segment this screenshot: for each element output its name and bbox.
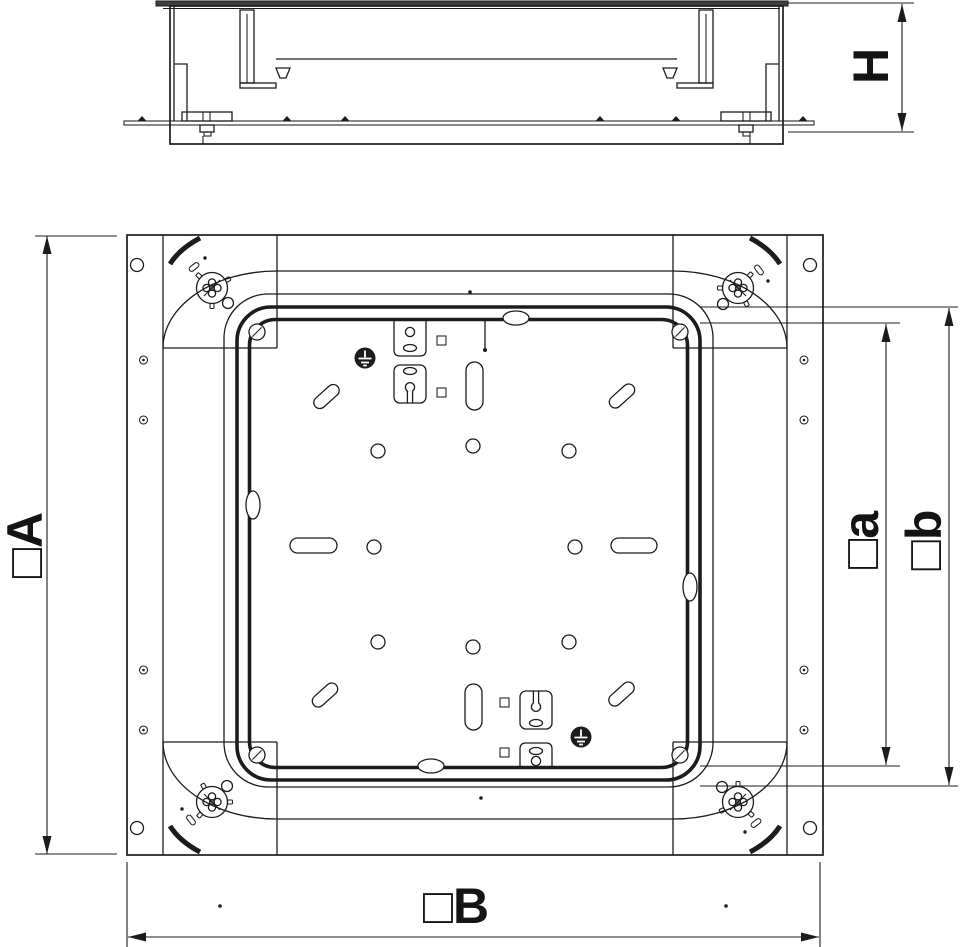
cassette-box: [224, 294, 713, 787]
cover-screw-icon: [249, 324, 265, 340]
side-view: [124, 1, 814, 144]
wall-knockout: [503, 311, 529, 325]
wall-knockout: [683, 573, 697, 601]
dim-b-label: □b: [896, 510, 952, 571]
leveling-screw-icon: [717, 782, 762, 834]
dimension-arrow: [43, 836, 52, 854]
outer-frame: [127, 235, 823, 855]
dimension-B: □B: [127, 862, 820, 947]
dimension-arrow: [898, 4, 907, 22]
top-view: [127, 235, 823, 908]
mounting-flange: [124, 112, 814, 144]
ground-symbol-icon: [355, 348, 376, 369]
dimension-arrow: [945, 308, 954, 326]
cover-screw-icon: [672, 324, 688, 340]
mounting-plate-features: [290, 320, 657, 768]
reference-dots: [218, 290, 728, 908]
dim-H-label: H: [843, 48, 899, 84]
technical-drawing-page: H: [0, 0, 960, 947]
corner-pad-top-right: [673, 235, 787, 348]
wall-knockout: [418, 759, 444, 773]
dimension-H: H: [788, 3, 914, 132]
clamp-punchout: [520, 691, 552, 729]
dimension-arrow: [801, 933, 819, 942]
clamp-punchout-bottom-edge: [520, 743, 552, 768]
dim-B-label: □B: [423, 878, 489, 934]
dimension-arrow: [128, 933, 146, 942]
dimension-arrow: [882, 747, 891, 765]
corner-pad-bottom-right: [673, 742, 787, 855]
hanger-bracket-right: [677, 10, 713, 88]
inner-step-profile: [174, 64, 779, 121]
dimension-arrow: [43, 236, 52, 254]
clip-right: [663, 68, 677, 78]
dimension-arrow: [945, 767, 954, 785]
wall-knockout: [246, 491, 260, 519]
clip-left: [276, 68, 290, 78]
ground-symbol-icon: [571, 727, 592, 748]
hanger-bracket-left: [240, 10, 276, 88]
clamp-punchout: [394, 365, 426, 403]
dimension-arrow: [882, 324, 891, 342]
dimension-a: □a: [700, 323, 900, 766]
dimension-arrow: [898, 113, 907, 131]
box-body: [170, 6, 783, 144]
leveling-screw-icon: [188, 256, 233, 308]
cover-screw-icon: [672, 747, 688, 763]
dimension-b: □b: [700, 307, 958, 786]
dim-a-label: □a: [833, 510, 889, 569]
clamp-punchout-top-edge: [394, 320, 426, 356]
floor-box-drawing: H: [0, 0, 960, 947]
cover-screw-icon: [249, 747, 265, 763]
dimension-A: □A: [0, 236, 117, 854]
dim-A-label: □A: [0, 512, 53, 578]
